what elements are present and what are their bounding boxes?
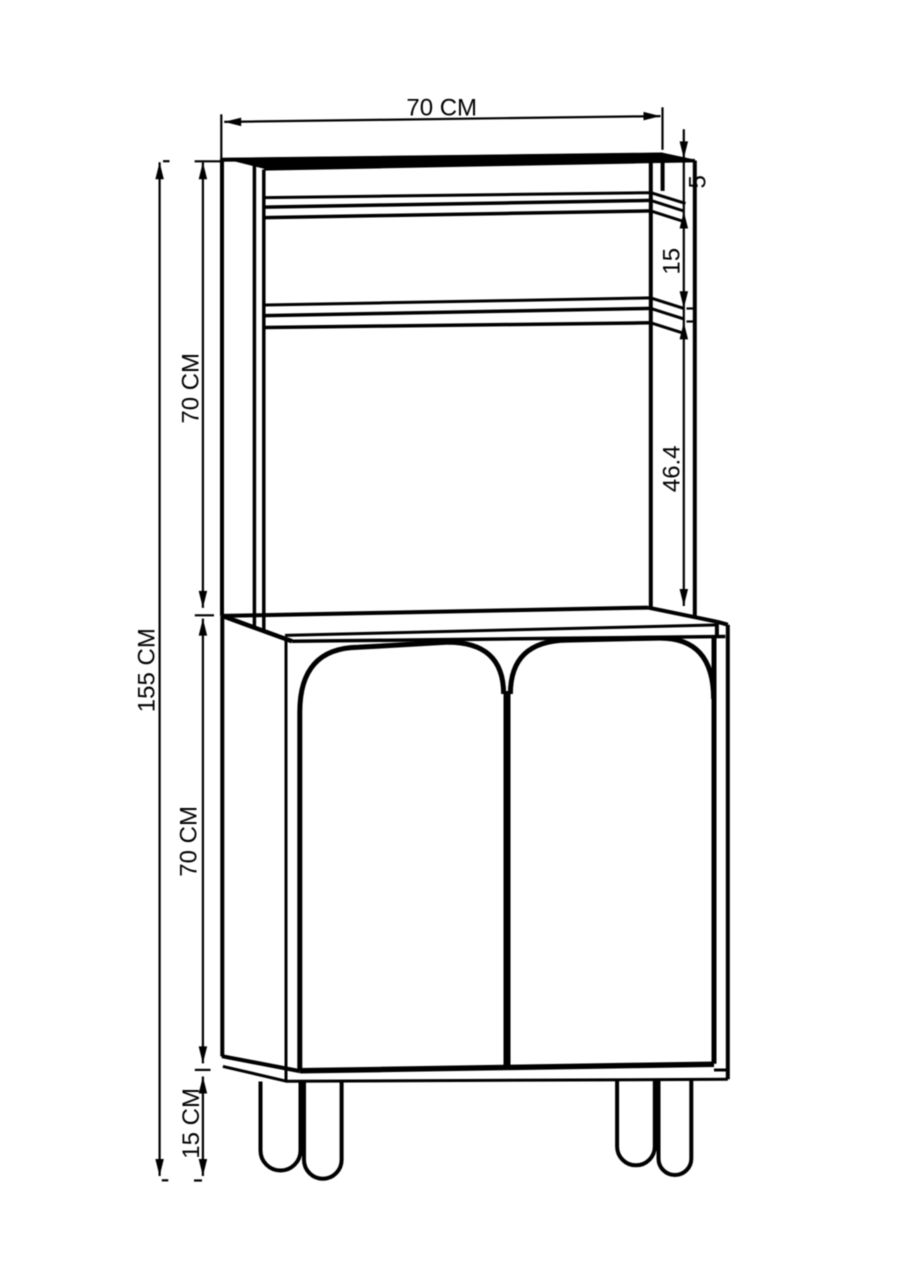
svg-text:15: 15 (659, 248, 686, 275)
svg-text:70 CM: 70 CM (177, 353, 204, 424)
svg-text:70 CM: 70 CM (406, 95, 477, 122)
svg-text:70 CM: 70 CM (175, 806, 202, 877)
svg-text:15 CM: 15 CM (178, 1088, 205, 1159)
svg-text:155 CM: 155 CM (134, 628, 161, 712)
svg-text:5: 5 (684, 175, 711, 188)
svg-text:46.4: 46.4 (658, 445, 685, 492)
